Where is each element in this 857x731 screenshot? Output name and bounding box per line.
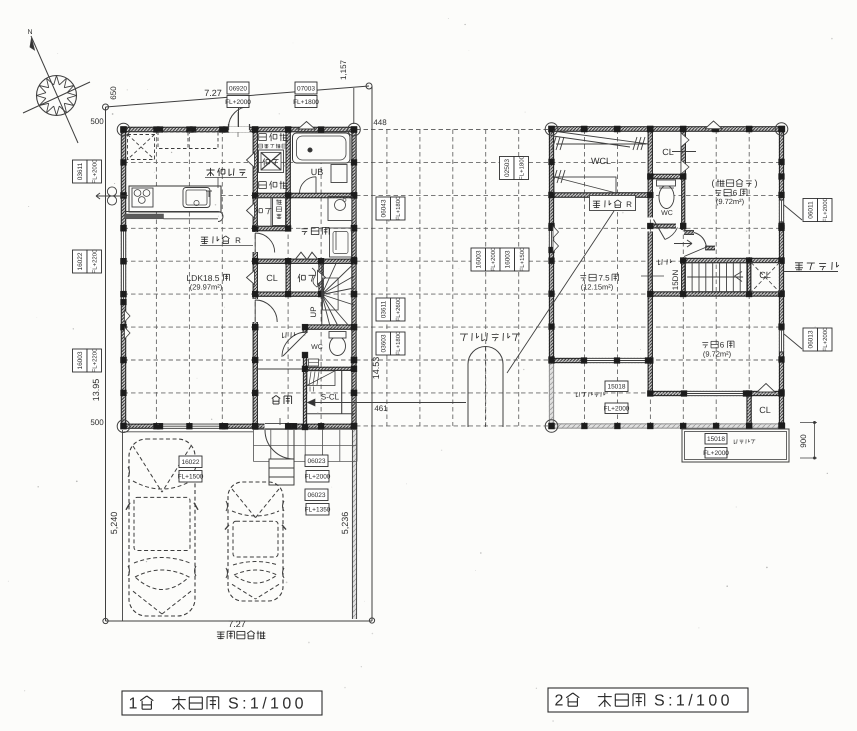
svg-text:FL+2200: FL+2200 <box>92 249 99 274</box>
svg-text:FL+2200: FL+2200 <box>92 348 99 373</box>
svg-text:15018: 15018 <box>607 384 625 391</box>
svg-text:06013: 06013 <box>808 330 815 348</box>
svg-text:FL+1500: FL+1500 <box>519 247 526 272</box>
svg-text:S:1/100: S:1/100 <box>654 693 733 710</box>
svg-text:LDK18.5: LDK18.5 <box>186 273 219 283</box>
svg-text:2: 2 <box>555 693 564 710</box>
svg-text:FL+1800: FL+1800 <box>519 155 526 180</box>
svg-text:WC: WC <box>661 210 673 217</box>
svg-text:03611: 03611 <box>380 300 387 318</box>
svg-text:(9.72m²): (9.72m²) <box>716 197 745 206</box>
svg-text:5,240: 5,240 <box>109 512 119 535</box>
svg-text:): ) <box>755 178 758 188</box>
svg-text:FL+2000: FL+2000 <box>822 327 829 352</box>
svg-text:7.27: 7.27 <box>204 88 222 98</box>
svg-text:UB: UB <box>311 167 324 177</box>
svg-text:(29.97m²): (29.97m²) <box>190 283 223 292</box>
svg-text:FL+1500: FL+1500 <box>178 474 204 481</box>
svg-text:FL+2000: FL+2000 <box>703 450 729 457</box>
svg-text:03603: 03603 <box>380 334 387 352</box>
svg-text:(12.15m²): (12.15m²) <box>581 283 614 292</box>
svg-text:15018: 15018 <box>707 436 725 443</box>
svg-text:FL+2000: FL+2000 <box>490 247 497 272</box>
svg-text:S-CL: S-CL <box>321 393 340 402</box>
svg-text:FL+2600: FL+2600 <box>395 297 402 322</box>
svg-text:R: R <box>235 236 241 245</box>
svg-text:06920: 06920 <box>229 85 247 92</box>
svg-text:7.5: 7.5 <box>598 274 610 283</box>
svg-text:FL+2000: FL+2000 <box>305 474 331 481</box>
svg-text:06023: 06023 <box>307 458 325 465</box>
svg-text:900: 900 <box>799 434 808 448</box>
svg-text:S:1/100: S:1/100 <box>228 696 307 713</box>
svg-text:16003: 16003 <box>504 250 511 268</box>
svg-text:6: 6 <box>720 341 725 350</box>
svg-text:FL+1350: FL+1350 <box>305 507 331 514</box>
svg-text:7.27: 7.27 <box>228 619 246 629</box>
svg-text:N: N <box>27 29 32 36</box>
svg-text:FL+1800: FL+1800 <box>293 99 319 106</box>
svg-text:16003: 16003 <box>77 351 84 369</box>
svg-text:500: 500 <box>90 418 104 427</box>
svg-text:CL: CL <box>662 147 674 157</box>
svg-text:WC: WC <box>311 344 323 351</box>
svg-text:448: 448 <box>373 118 387 127</box>
svg-text:1,157: 1,157 <box>339 59 348 80</box>
svg-text:650: 650 <box>109 86 118 100</box>
svg-text:1: 1 <box>129 696 138 713</box>
svg-text:07003: 07003 <box>297 85 315 92</box>
svg-text:(: ( <box>712 178 715 188</box>
svg-text:5,236: 5,236 <box>340 512 350 535</box>
svg-text:06043: 06043 <box>380 199 387 217</box>
svg-text:16003: 16003 <box>475 250 482 268</box>
svg-text:06011: 06011 <box>808 201 815 219</box>
svg-text:500: 500 <box>90 117 104 126</box>
svg-text:FL+2000: FL+2000 <box>604 406 630 413</box>
svg-text:461: 461 <box>374 404 388 413</box>
svg-text:UP: UP <box>309 306 318 317</box>
svg-text:WCL: WCL <box>591 156 611 166</box>
svg-text:15DN: 15DN <box>671 270 680 291</box>
svg-text:CL: CL <box>266 273 278 283</box>
svg-text:14.53: 14.53 <box>371 357 381 380</box>
svg-text:FL+2000: FL+2000 <box>92 159 99 184</box>
svg-text:02503: 02503 <box>504 159 511 177</box>
svg-text:R: R <box>626 200 632 209</box>
svg-text:FL+1800: FL+1800 <box>395 331 402 356</box>
svg-text:03611: 03611 <box>77 162 84 180</box>
svg-text:06023: 06023 <box>307 492 325 499</box>
svg-text:FL+2000: FL+2000 <box>225 99 251 106</box>
svg-text:FL+1800: FL+1800 <box>395 196 402 221</box>
svg-text:16022: 16022 <box>77 252 84 270</box>
svg-text:CL: CL <box>759 405 771 415</box>
svg-text:CL: CL <box>759 270 771 280</box>
svg-text:13.95: 13.95 <box>91 379 101 402</box>
svg-text:16022: 16022 <box>181 459 199 466</box>
svg-text:FL+2000: FL+2000 <box>822 197 829 222</box>
